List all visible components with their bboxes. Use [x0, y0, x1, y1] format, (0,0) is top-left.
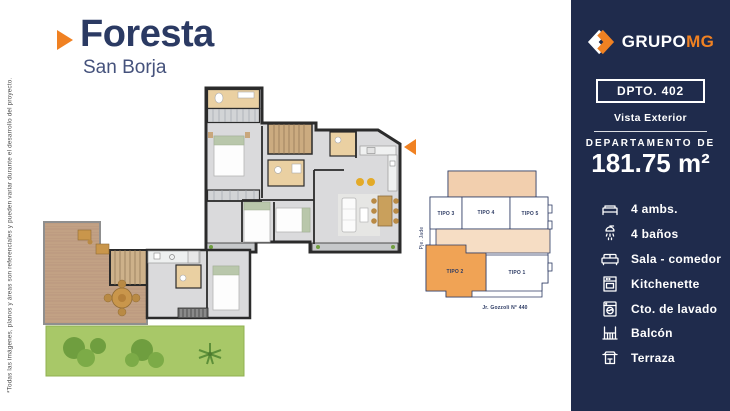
- feature-row: 4 ambs.: [600, 197, 721, 222]
- entrance-arrow-icon: [404, 139, 416, 155]
- feature-row: Terraza: [600, 346, 721, 371]
- feature-label: 4 baños: [631, 227, 678, 241]
- keyplan-street-bottom: Jr. Gozzoli N° 440: [482, 305, 527, 311]
- laundry-icon: [600, 299, 620, 319]
- keyplan-label-tipo-2: TIPO 2: [446, 269, 463, 275]
- header-arrow-icon: [57, 30, 73, 50]
- divider: [594, 131, 707, 132]
- feature-label: Sala - comedor: [631, 252, 721, 266]
- feature-label: Terraza: [631, 351, 675, 365]
- feature-label: Balcón: [631, 326, 673, 340]
- project-title: Foresta: [80, 13, 214, 56]
- floorplan-graphic: [38, 82, 420, 382]
- sofa-icon: [600, 249, 620, 269]
- spec-sidebar: GRUPOMG DPTO. 402 Vista Exterior DEPARTA…: [571, 0, 730, 411]
- shower-icon: [600, 224, 620, 244]
- feature-label: Cto. de lavado: [631, 302, 717, 316]
- keyplan-street-left: Pje. Jade: [419, 227, 425, 250]
- terrace-icon: [600, 348, 620, 368]
- project-subtitle: San Borja: [83, 57, 166, 79]
- view-label: Vista Exterior: [571, 112, 730, 124]
- brand-name-secondary: MG: [686, 32, 714, 52]
- unit-badge: DPTO. 402: [596, 79, 705, 103]
- keyplan-label-tipo-4: TIPO 4: [477, 210, 494, 216]
- keyplan-label-tipo-1: TIPO 1: [508, 270, 525, 276]
- keyplan: TIPO 3 TIPO 4 TIPO 5 TIPO 2 TIPO 1 Jr. G…: [418, 163, 568, 315]
- disclaimer-text: *Todas las imágenes, planos y áreas son …: [4, 70, 16, 400]
- brand-diamond-icon: [587, 28, 615, 56]
- feature-row: Balcón: [600, 321, 721, 346]
- feature-row: Cto. de lavado: [600, 296, 721, 321]
- feature-label: 4 ambs.: [631, 202, 678, 216]
- balcony-icon: [600, 323, 620, 343]
- brochure-canvas: *Todas las imágenes, planos y áreas son …: [0, 0, 730, 411]
- kitchenette-icon: [600, 274, 620, 294]
- feature-label: Kitchenette: [631, 277, 700, 291]
- area-value: 181.75 m²: [571, 148, 730, 179]
- keyplan-label-tipo-5: TIPO 5: [521, 211, 538, 217]
- feature-row: 4 baños: [600, 222, 721, 247]
- feature-list: 4 ambs. 4 baños Sala - comedor Kitchenet…: [600, 197, 721, 371]
- brand-name: GRUPOMG: [622, 32, 715, 52]
- garden: [46, 326, 244, 376]
- keyplan-label-tipo-3: TIPO 3: [437, 211, 454, 217]
- brand-logo: GRUPOMG: [571, 28, 730, 56]
- upper-floorplan: [206, 88, 400, 252]
- feature-row: Sala - comedor: [600, 247, 721, 272]
- feature-row: Kitchenette: [600, 271, 721, 296]
- keyplan-graphic: [418, 163, 568, 315]
- bed-icon: [600, 199, 620, 219]
- brand-name-primary: GRUPO: [622, 32, 686, 52]
